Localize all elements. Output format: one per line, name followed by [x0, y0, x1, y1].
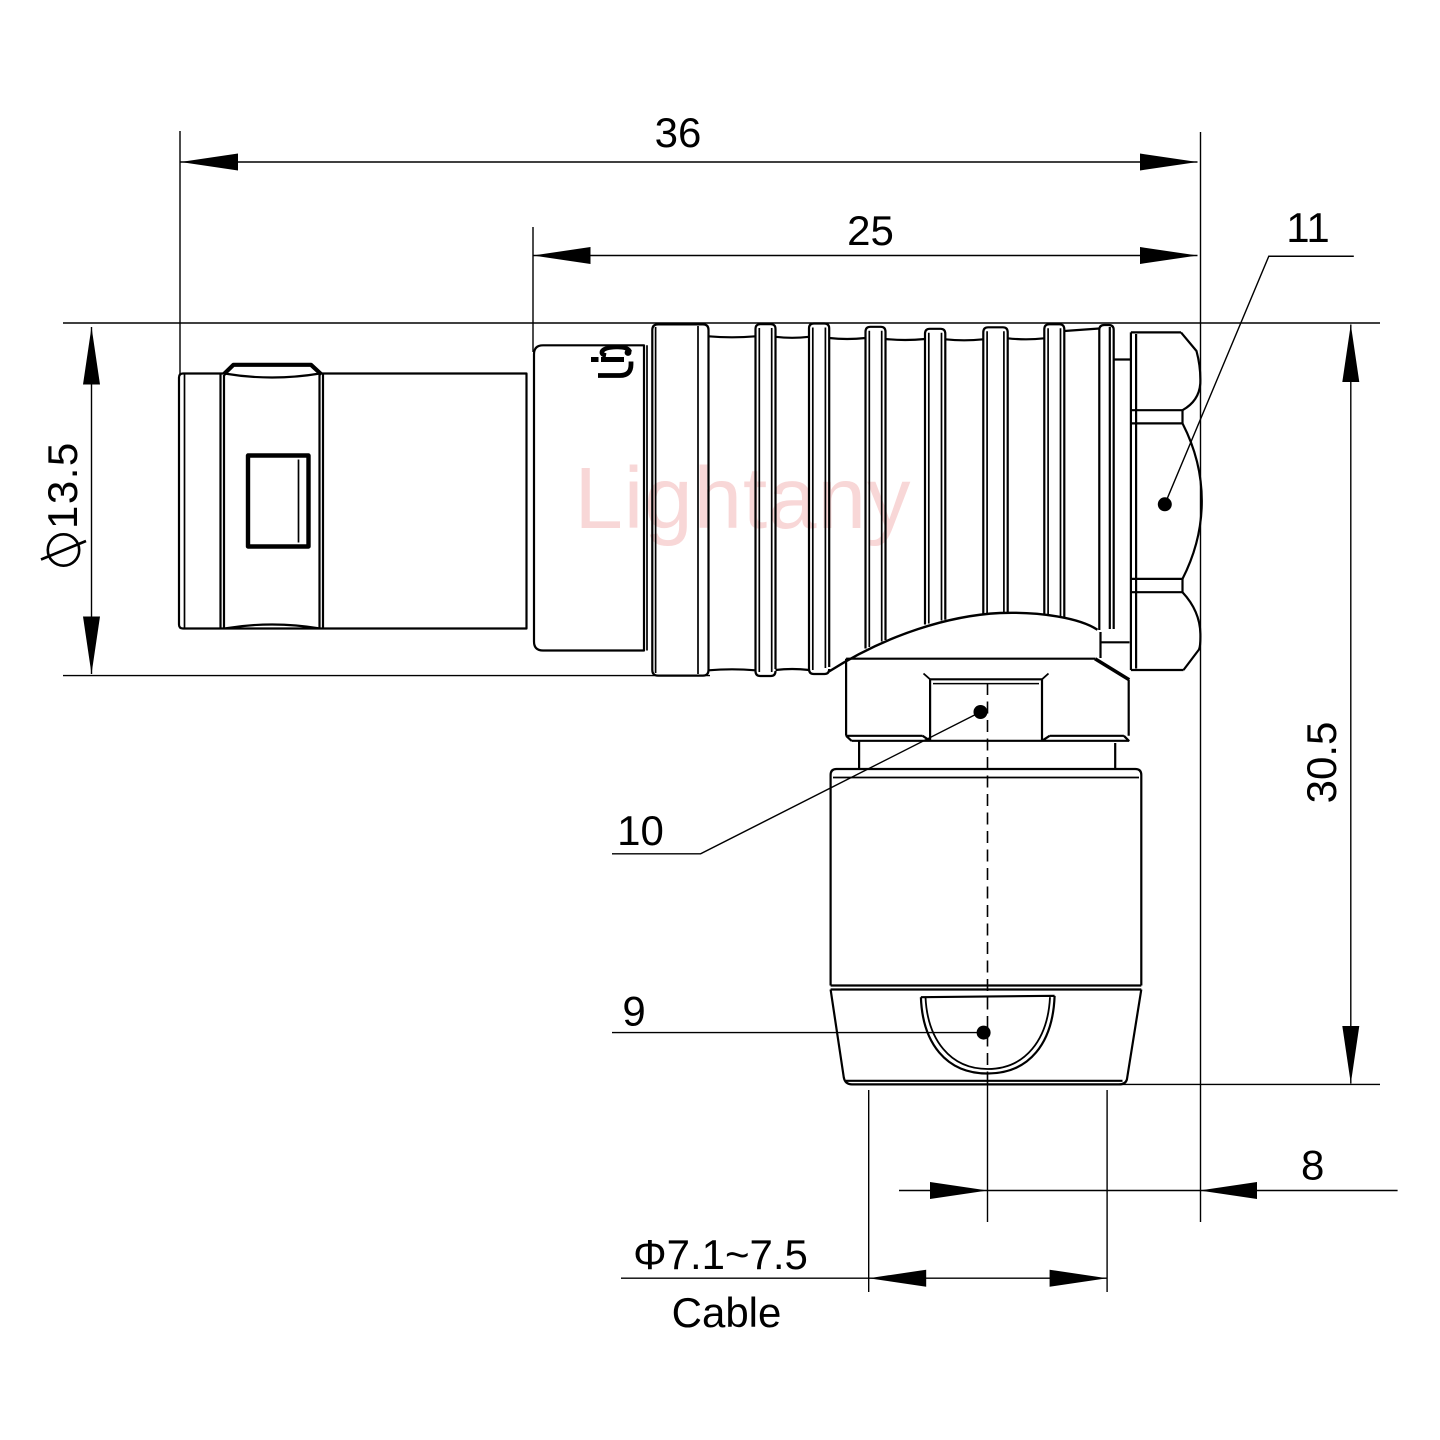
svg-text:Cable: Cable: [672, 1289, 782, 1336]
svg-text:25: 25: [847, 207, 894, 254]
svg-text:11: 11: [1286, 204, 1330, 251]
svg-text:9: 9: [622, 988, 645, 1035]
svg-text:Lightany: Lightany: [575, 450, 912, 547]
svg-text:36: 36: [655, 109, 702, 156]
svg-text:30.5: 30.5: [1298, 722, 1345, 804]
svg-text:13.5: 13.5: [39, 441, 86, 529]
svg-text:8: 8: [1301, 1142, 1324, 1189]
svg-text:10: 10: [617, 807, 664, 854]
svg-text:Φ7.1~7.5: Φ7.1~7.5: [633, 1231, 808, 1278]
